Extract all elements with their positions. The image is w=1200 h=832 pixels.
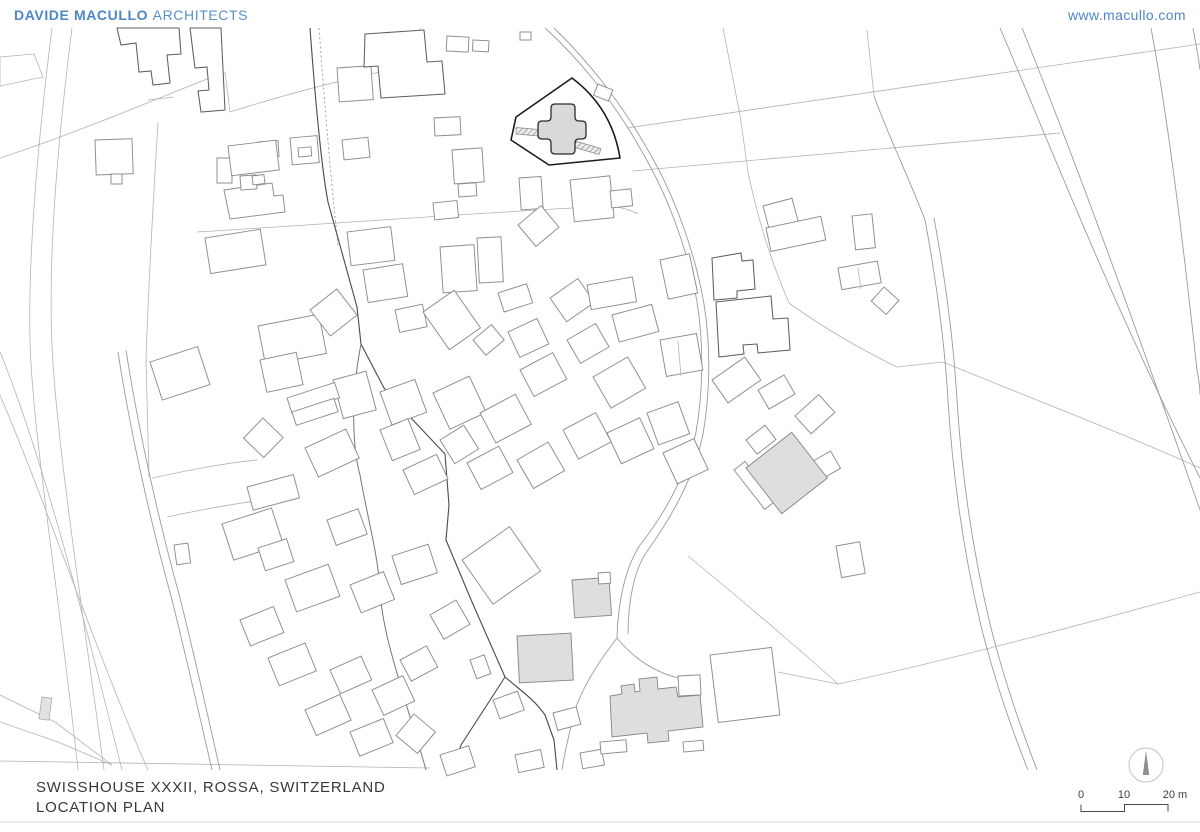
scale-bar: 0 10 20 m xyxy=(1078,789,1187,812)
north-arrow-icon xyxy=(1129,748,1163,782)
large-white-building xyxy=(710,647,780,722)
scale-label-10: 10 xyxy=(1118,789,1130,801)
scale-label-0: 0 xyxy=(1078,789,1084,801)
drawing-title: LOCATION PLAN xyxy=(36,798,386,818)
project-title: SWISSHOUSE XXXII, ROSSA, SWITZERLAND xyxy=(36,778,386,798)
buildings xyxy=(95,28,899,776)
drawing-sheet: DAVIDE MACULLO ARCHITECTS www.macullo.co… xyxy=(0,0,1200,832)
title-block: SWISSHOUSE XXXII, ROSSA, SWITZERLAND LOC… xyxy=(36,778,386,818)
location-plan-map: 0 10 20 m xyxy=(0,0,1200,832)
gray-building-square xyxy=(517,633,573,683)
scale-label-20m: 20 m xyxy=(1163,789,1187,801)
